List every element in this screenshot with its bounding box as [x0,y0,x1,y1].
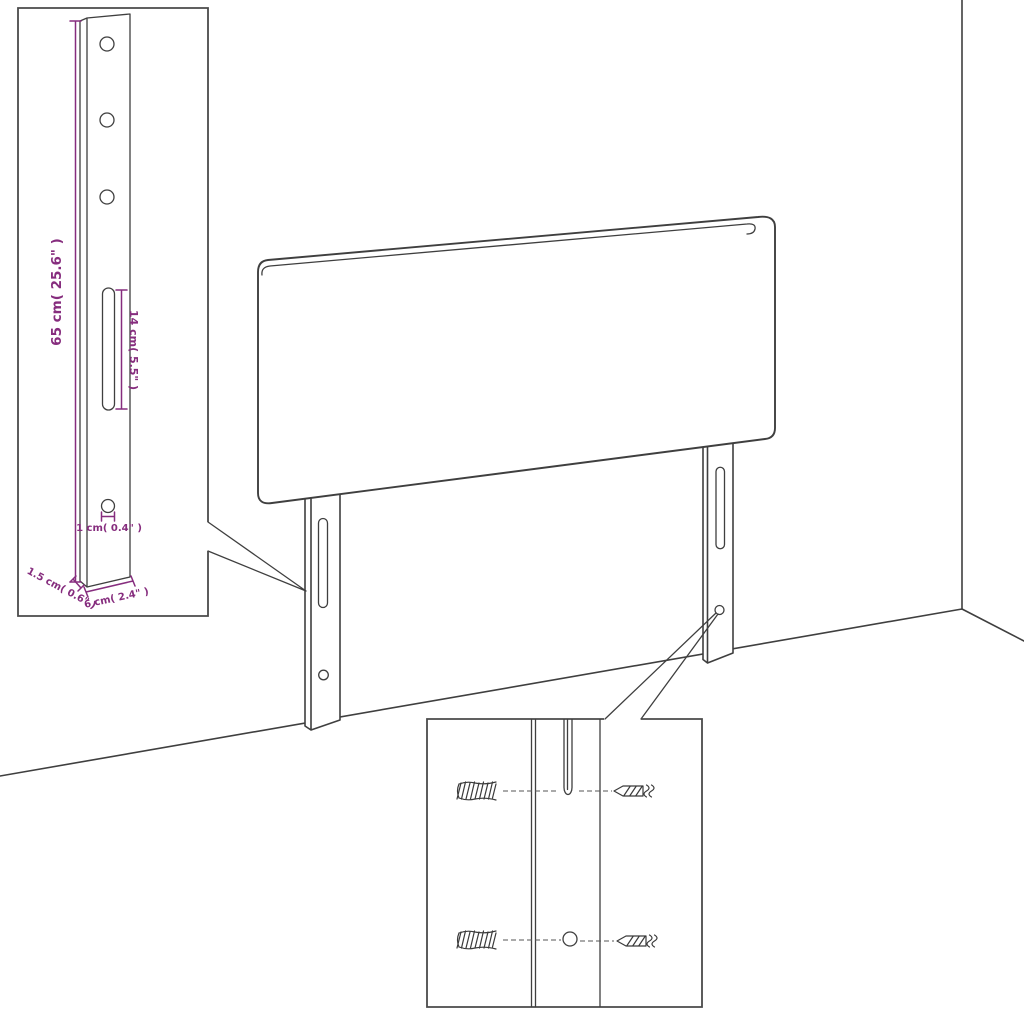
right-leg-front-face [708,441,734,663]
left-leg-front-face [311,487,340,730]
left-leg-side-face [305,490,311,730]
callout-lines-mounting-detail [605,613,718,719]
bracket-drawing [80,14,130,587]
dimension-height: 65 cm( 25.6" ) [49,21,81,582]
floor-line-right [962,609,1024,641]
bracket-side-face [80,18,87,587]
dimension-slot-label: 14 cm( 5.5" ) [127,310,140,390]
mounting-detail-inset [427,719,702,1007]
headboard [258,217,775,730]
dimension-hole-label: 1 cm( 0.4" ) [76,523,142,534]
bracket-detail-inset: 65 cm( 25.6" ) 14 cm( 5.5" ) 1 cm( 0.4" … [18,8,208,616]
left-leg-bracket [305,487,340,730]
alignment-dashed-lines [503,791,614,941]
floor-line-left [0,609,962,776]
leg-closeup-hole [563,932,577,946]
leg-closeup [532,720,601,1007]
screw-icon [614,785,654,797]
screw-icon [617,935,657,947]
bracket-front-face [87,14,130,587]
leg-closeup-edges [532,720,601,1007]
dimension-height-label: 65 cm( 25.6" ) [49,238,65,346]
wall-plug-icon [457,782,496,800]
right-leg-bracket [703,441,733,663]
wall-plug-icon [457,931,496,949]
product-diagram: 65 cm( 25.6" ) 14 cm( 5.5" ) 1 cm( 0.4" … [0,0,1024,1024]
callout-lines-bracket-detail [208,522,306,591]
assembly-diagram-svg: 65 cm( 25.6" ) 14 cm( 5.5" ) 1 cm( 0.4" … [0,0,1024,1024]
